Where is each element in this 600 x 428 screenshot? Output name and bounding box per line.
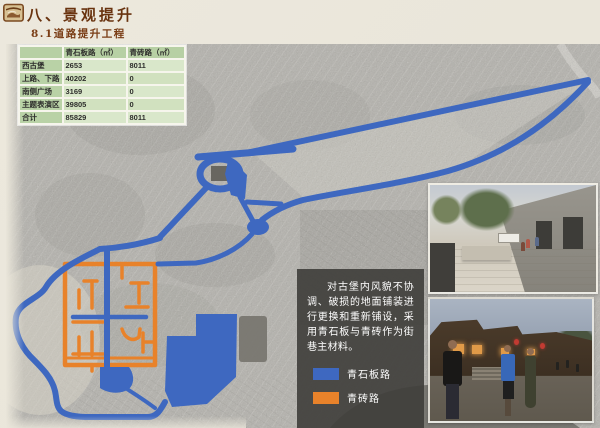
table-row: 西古堡 2653 8011 <box>19 59 185 72</box>
pavilion-seal-icon <box>3 3 24 22</box>
photo-person-head <box>448 340 457 349</box>
header-brick-road: 青砖路（㎡） <box>127 46 185 59</box>
stone-value: 2653 <box>63 59 127 72</box>
photo-red-lantern <box>514 339 519 345</box>
photo-person <box>526 239 530 248</box>
photo-window <box>536 221 551 249</box>
slide-canvas: 八、景观提升 8.1道路提升工程 青石板路（㎡） 青砖路（㎡） 西古堡 2653… <box>0 0 600 428</box>
photo-person-distant <box>566 360 569 368</box>
brick-value: 0 <box>127 72 185 85</box>
road-area-table: 青石板路（㎡） 青砖路（㎡） 西古堡 2653 8011 上路、下路 40202… <box>18 45 186 125</box>
photo-person-blue-shirt <box>500 345 518 416</box>
page-title: 八、景观提升 <box>27 4 135 25</box>
stone-value: 3169 <box>63 85 127 98</box>
photo-pavement <box>430 247 596 292</box>
photo-person-legs <box>505 399 512 416</box>
photo-person <box>535 237 539 246</box>
stone-value: 85829 <box>63 111 127 124</box>
photo-tree <box>430 194 463 226</box>
note-text: 对古堡内风貌不协调、破损的地面铺装进行更换和重新铺设，采用青石板与青砖作为街巷主… <box>307 280 414 355</box>
photo-stone-bench <box>462 246 512 260</box>
photo-sign <box>498 233 520 243</box>
row-label: 西古堡 <box>19 59 63 72</box>
legend-label: 青石板路 <box>347 366 391 381</box>
photo-person-head <box>527 348 534 355</box>
map-legend: 青石板路 青砖路 <box>307 366 414 405</box>
photo-person-distant <box>556 362 559 370</box>
photo-tree <box>457 187 517 232</box>
note-box: 对古堡内风貌不协调、破损的地面铺装进行更换和重新铺设，采用青石板与青砖作为街巷主… <box>297 269 424 428</box>
row-label: 上路、下路 <box>19 72 63 85</box>
row-label: 南侧广场 <box>19 85 63 98</box>
table-row: 主题表演区 39805 0 <box>19 98 185 111</box>
photo-red-lantern <box>540 343 545 349</box>
photo-person-dress <box>522 348 538 416</box>
brick-road-swatch <box>313 392 339 404</box>
brick-value: 8011 <box>127 111 185 124</box>
photo-person-black-shirt <box>438 340 467 418</box>
stone-road-swatch <box>313 368 339 380</box>
brick-value: 0 <box>127 85 185 98</box>
header-empty <box>19 46 63 59</box>
table-row: 南侧广场 3169 0 <box>19 85 185 98</box>
photo-person-body <box>525 356 536 408</box>
legend-label: 青砖路 <box>347 390 380 405</box>
table-row: 上路、下路 40202 0 <box>19 72 185 85</box>
photo-window <box>563 217 582 249</box>
page-subtitle: 8.1道路提升工程 <box>31 26 126 41</box>
photo-person-legs <box>446 384 459 418</box>
row-label: 主题表演区 <box>19 98 63 111</box>
stone-value: 40202 <box>63 72 127 85</box>
photo-person-shorts <box>503 381 513 399</box>
stone-value: 39805 <box>63 98 127 111</box>
brick-value: 8011 <box>127 59 185 72</box>
brick-value: 0 <box>127 98 185 111</box>
legend-item-stone: 青石板路 <box>307 366 414 381</box>
header-stone-road: 青石板路（㎡） <box>63 46 127 59</box>
photo-person <box>521 242 525 251</box>
photo-person-head <box>504 345 511 352</box>
photo-person-torso <box>443 351 462 385</box>
photo-person-distant <box>576 364 579 372</box>
photo-street-day <box>428 183 598 294</box>
table-row-total: 合计 85829 8011 <box>19 111 185 124</box>
legend-item-brick: 青砖路 <box>307 390 414 405</box>
table-header-row: 青石板路（㎡） 青砖路（㎡） <box>19 46 185 59</box>
photo-person-torso <box>501 354 515 381</box>
photo-street-dusk <box>428 297 594 423</box>
photo-lit-window <box>472 345 482 354</box>
row-label: 合计 <box>19 111 63 124</box>
photo-kiosk <box>430 243 455 292</box>
